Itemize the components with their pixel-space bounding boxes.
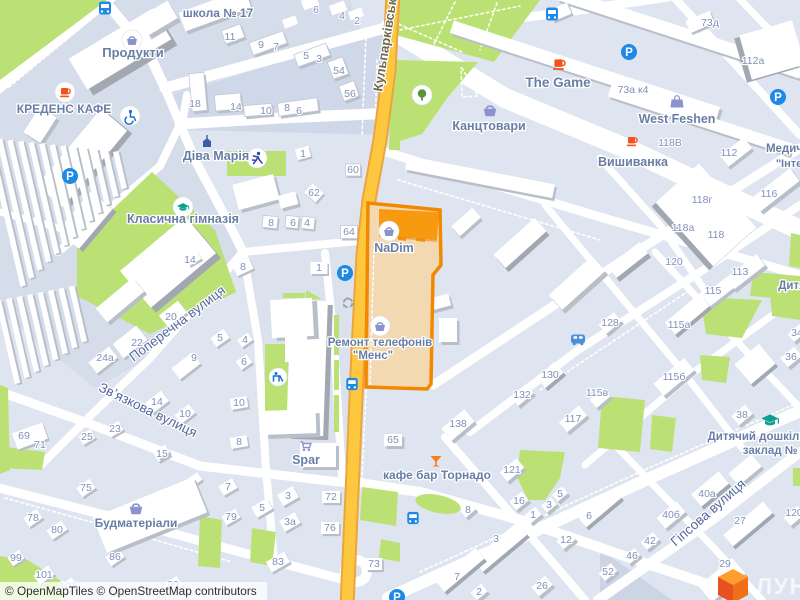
svg-text:99: 99 [10,552,22,564]
svg-text:116: 116 [761,188,778,200]
svg-text:138: 138 [449,418,467,430]
svg-text:4: 4 [304,217,310,229]
svg-text:West Feshen: West Feshen [639,112,716,126]
svg-text:34: 34 [791,327,800,339]
svg-text:86: 86 [109,551,121,563]
svg-text:8: 8 [240,261,246,273]
svg-text:NaDim: NaDim [374,241,414,255]
svg-text:14: 14 [184,254,196,266]
svg-text:121: 121 [503,464,521,476]
svg-text:75: 75 [80,482,92,494]
svg-text:2: 2 [476,586,482,598]
svg-text:9: 9 [191,352,197,364]
svg-text:3: 3 [285,490,291,502]
svg-text:7: 7 [225,481,231,493]
svg-text:3: 3 [316,53,322,65]
svg-text:115в: 115в [586,387,609,399]
svg-text:12: 12 [560,534,572,546]
svg-text:83: 83 [272,556,284,568]
svg-text:"Менс": "Менс" [353,350,393,362]
svg-text:132: 132 [513,389,531,401]
svg-text:7: 7 [454,571,460,583]
svg-text:7: 7 [273,41,279,53]
svg-text:5: 5 [557,488,563,500]
svg-text:3а: 3а [284,516,296,528]
svg-text:P: P [393,591,401,600]
svg-text:29: 29 [719,558,731,570]
svg-text:Діва Марія: Діва Марія [183,149,249,163]
svg-text:20: 20 [165,311,177,323]
svg-text:52: 52 [602,566,614,578]
svg-text:22: 22 [131,337,143,349]
svg-text:10: 10 [233,397,245,409]
svg-text:69: 69 [18,430,30,442]
svg-text:2: 2 [354,15,360,27]
svg-text:8: 8 [465,504,471,516]
svg-text:© OpenMapTiles © OpenStreetMap: © OpenMapTiles © OpenStreetMap contribut… [5,584,257,598]
svg-text:113: 113 [732,266,749,278]
svg-text:27: 27 [734,515,746,527]
svg-text:42: 42 [644,535,656,547]
svg-text:128: 128 [601,317,619,329]
svg-text:40а: 40а [698,488,716,500]
svg-text:Spar: Spar [292,453,320,467]
svg-text:15: 15 [156,448,168,460]
svg-text:8: 8 [236,436,242,448]
svg-text:112а: 112а [742,55,765,67]
svg-text:10: 10 [179,408,191,420]
svg-text:118а: 118а [672,222,695,234]
svg-text:25: 25 [81,431,93,443]
svg-text:КРЕДЕНС КАФЕ: КРЕДЕНС КАФЕ [17,102,112,116]
svg-text:62: 62 [308,187,320,199]
svg-text:6: 6 [241,356,247,368]
svg-text:The Game: The Game [525,75,591,90]
svg-text:Дитя: Дитя [778,280,800,292]
svg-text:118г: 118г [692,194,713,206]
svg-text:118: 118 [708,229,725,241]
svg-text:P: P [625,46,633,59]
svg-text:65: 65 [387,434,399,446]
svg-text:8: 8 [284,102,290,114]
svg-text:23: 23 [109,423,121,435]
svg-text:5: 5 [217,332,223,344]
svg-text:Продукти: Продукти [102,45,164,60]
svg-text:118В: 118В [658,137,682,149]
svg-text:46: 46 [626,550,638,562]
svg-text:4: 4 [339,10,345,22]
svg-text:6: 6 [313,4,319,16]
svg-text:3: 3 [546,499,552,511]
svg-text:60: 60 [347,164,359,176]
svg-text:24а: 24а [96,352,114,364]
svg-text:ЛУН: ЛУН [756,573,800,599]
svg-text:115а: 115а [668,319,691,331]
svg-text:P: P [774,91,782,104]
svg-text:56: 56 [344,88,356,100]
svg-text:Ремонт телефонів: Ремонт телефонів [328,337,433,349]
svg-text:1: 1 [316,262,322,274]
svg-text:1: 1 [300,148,306,160]
svg-text:73: 73 [368,558,380,570]
svg-text:14: 14 [230,101,242,113]
svg-text:36: 36 [785,351,797,363]
svg-text:80: 80 [51,524,63,536]
svg-text:115: 115 [705,285,722,297]
svg-text:73а к4: 73а к4 [618,84,649,96]
svg-text:76: 76 [324,522,336,534]
svg-text:115б: 115б [663,371,686,383]
svg-text:11: 11 [225,31,236,43]
svg-text:Дитячий дошкіль: Дитячий дошкіль [708,431,800,443]
svg-text:79: 79 [225,511,237,523]
svg-text:"Інтер": "Інтер" [776,158,800,170]
svg-text:64: 64 [343,226,355,238]
svg-text:73д: 73д [701,17,719,29]
svg-text:10: 10 [260,105,272,117]
svg-text:72: 72 [325,491,337,503]
svg-text:112: 112 [721,147,738,159]
svg-text:6: 6 [296,105,302,117]
svg-text:P: P [341,267,349,280]
svg-text:9: 9 [258,39,264,51]
svg-text:заклад № 1: заклад № 1 [743,445,800,457]
svg-text:130: 130 [541,369,559,381]
svg-text:Класична гімназія: Класична гімназія [127,212,239,226]
svg-text:120: 120 [665,256,683,268]
svg-text:14: 14 [151,396,163,408]
svg-text:26: 26 [536,580,548,592]
svg-text:40б: 40б [662,509,680,521]
svg-text:школа № 17: школа № 17 [183,6,254,20]
svg-text:3: 3 [493,533,499,545]
svg-text:8: 8 [268,217,274,229]
svg-text:78: 78 [27,512,39,524]
svg-text:1: 1 [530,509,536,521]
svg-text:P: P [66,170,74,183]
svg-text:117: 117 [565,413,582,425]
svg-text:4: 4 [242,334,248,346]
svg-text:18: 18 [189,98,201,110]
svg-text:101: 101 [35,569,53,581]
svg-text:71: 71 [34,439,46,451]
svg-text:120: 120 [785,507,800,519]
svg-text:Вишиванка: Вишиванка [598,155,669,169]
svg-text:Будматеріали: Будматеріали [95,516,178,530]
svg-text:кафе бар Торнадо: кафе бар Торнадо [383,468,491,482]
svg-text:5: 5 [303,50,309,62]
svg-text:6: 6 [586,510,592,522]
svg-text:38: 38 [736,409,748,421]
svg-text:Канцтовари: Канцтовари [452,119,525,133]
svg-text:5: 5 [259,502,265,514]
svg-text:Медичний: Медичний [766,143,800,155]
svg-text:54: 54 [333,65,345,77]
svg-text:6: 6 [290,217,296,229]
svg-text:16: 16 [513,495,525,507]
